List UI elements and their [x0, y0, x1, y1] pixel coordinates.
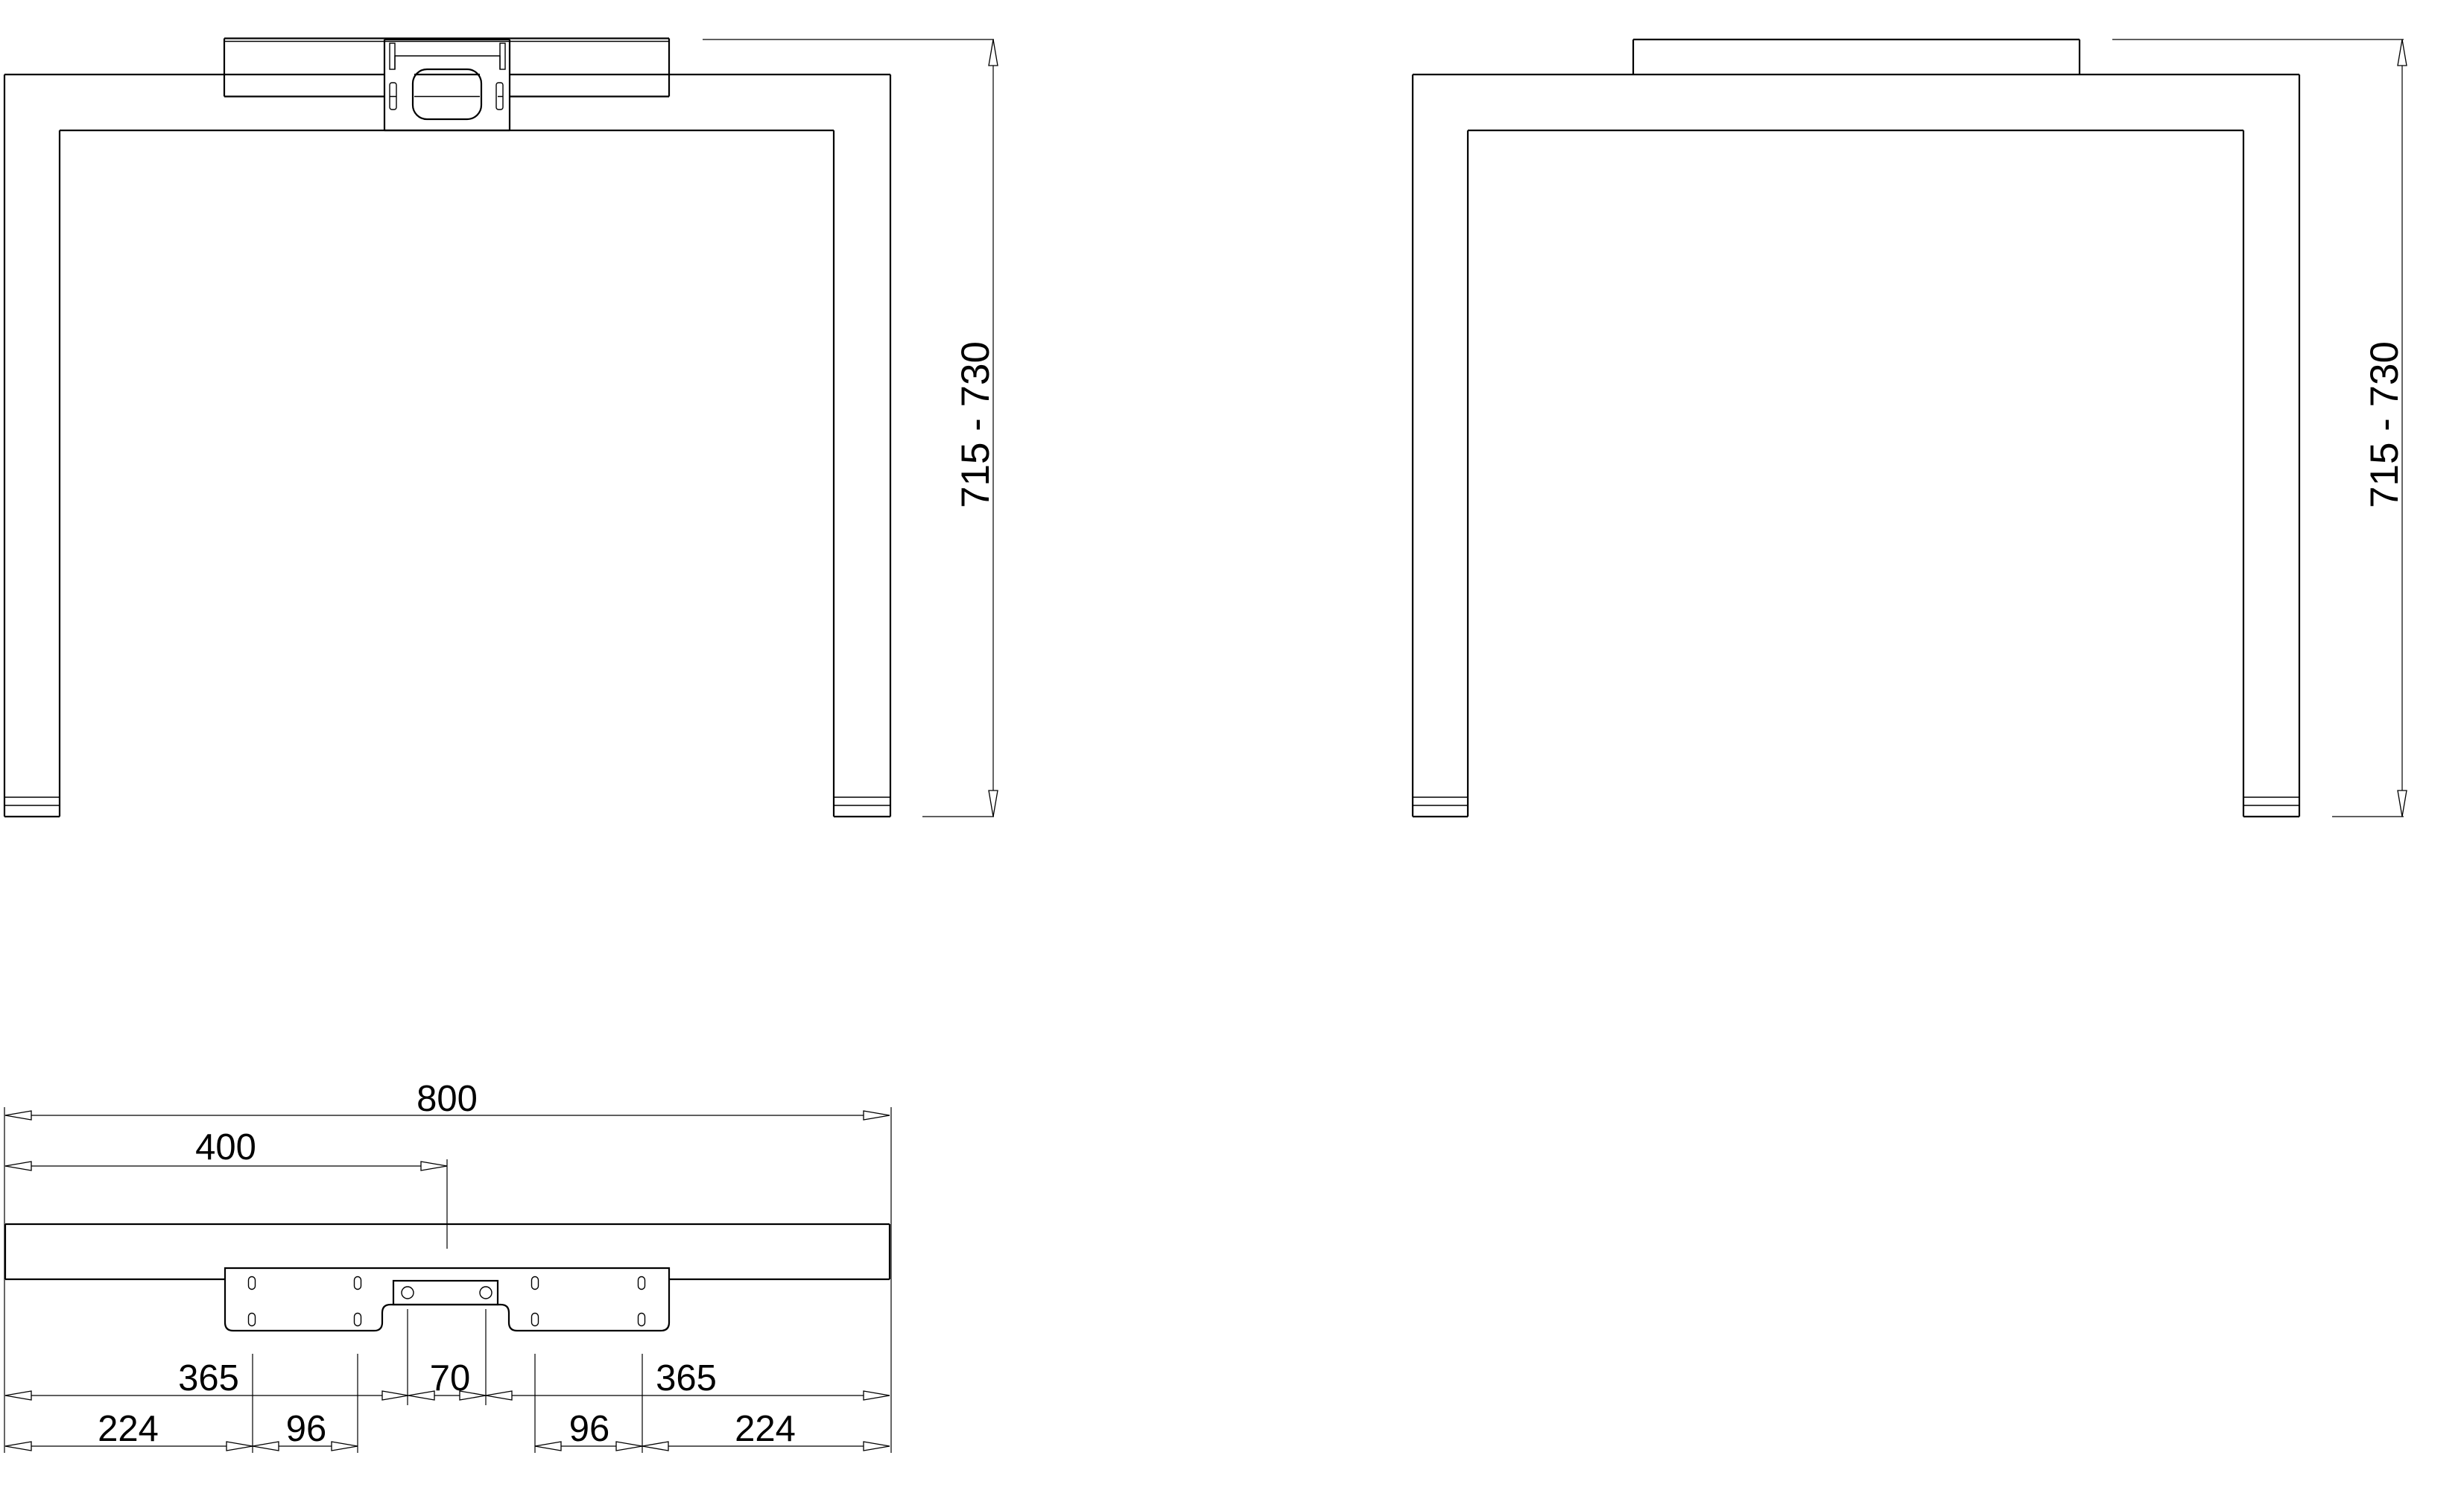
- height-label-right: 715 - 730: [2363, 341, 2407, 508]
- center-offset-label: 400: [195, 1127, 256, 1168]
- outer-left-label: 224: [98, 1409, 159, 1449]
- height-dimension-right: 715 - 730: [2112, 39, 2407, 817]
- hole-left-label: 365: [178, 1358, 239, 1398]
- block-hole-left: [402, 1287, 414, 1299]
- overall-width-label: 800: [417, 1079, 478, 1119]
- inner-left-label: 96: [286, 1409, 327, 1449]
- frame-outline: [4, 75, 890, 817]
- mounting-plate: [225, 1268, 669, 1331]
- bottom-view: 800 400 365 70 365: [4, 1079, 891, 1453]
- foot-glides: [4, 797, 890, 805]
- inner-right-label: 96: [569, 1409, 610, 1449]
- technical-drawing: 715 - 730 715 - 730: [0, 0, 2464, 1508]
- hole-spacing-label: 70: [430, 1358, 471, 1398]
- outer-right-label: 224: [735, 1409, 796, 1449]
- frame-outline: [1413, 75, 2299, 817]
- block-hole-right: [480, 1287, 492, 1299]
- foot-glides: [1413, 797, 2299, 805]
- center-block: [393, 1281, 498, 1305]
- front-view-plain: 715 - 730: [1413, 39, 2407, 817]
- bracket-channel: [395, 56, 500, 69]
- bracket-window: [413, 69, 481, 119]
- bracket-tab-right: [500, 43, 505, 69]
- bracket-tab-left: [390, 43, 395, 69]
- height-dimension-left: 715 - 730: [703, 39, 998, 817]
- motor-crossbar: [224, 39, 669, 97]
- bottom-dimensions: 800 400 365 70 365: [4, 1079, 891, 1453]
- motor-bracket: [384, 39, 510, 130]
- top-plate: [1633, 39, 2080, 75]
- drawing-page: 715 - 730 715 - 730: [0, 0, 2464, 1508]
- front-view-with-bracket: 715 - 730: [4, 39, 998, 817]
- plate-slots: [249, 1277, 645, 1326]
- height-label-left: 715 - 730: [954, 341, 998, 508]
- hole-right-label: 365: [656, 1358, 717, 1398]
